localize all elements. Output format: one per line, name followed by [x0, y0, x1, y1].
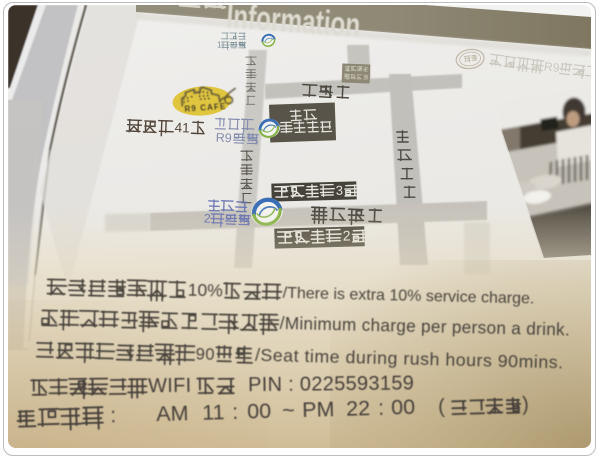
svg-text:WIFI: WIFI [148, 375, 192, 397]
svg-text:PM: PM [302, 397, 335, 422]
svg-text:22: 22 [346, 396, 371, 421]
svg-text:90: 90 [195, 346, 215, 364]
svg-text::: : [378, 396, 385, 420]
svg-text::: : [232, 400, 239, 424]
svg-text:10%: 10% [188, 280, 223, 301]
svg-text:AM: AM [156, 401, 189, 426]
svg-text:(: ( [438, 396, 446, 418]
svg-text:~: ~ [282, 398, 295, 422]
svg-text:41: 41 [174, 120, 190, 136]
svg-text:00: 00 [391, 395, 416, 420]
svg-text:R9: R9 [543, 59, 560, 75]
svg-text:PIN : 0225593159: PIN : 0225593159 [248, 373, 414, 397]
svg-text:): ) [522, 394, 529, 416]
svg-text:R9: R9 [216, 131, 233, 146]
svg-text::: : [110, 403, 117, 427]
svg-text:11: 11 [202, 400, 225, 425]
svg-text:00: 00 [247, 399, 272, 424]
svg-text:3: 3 [336, 183, 344, 198]
